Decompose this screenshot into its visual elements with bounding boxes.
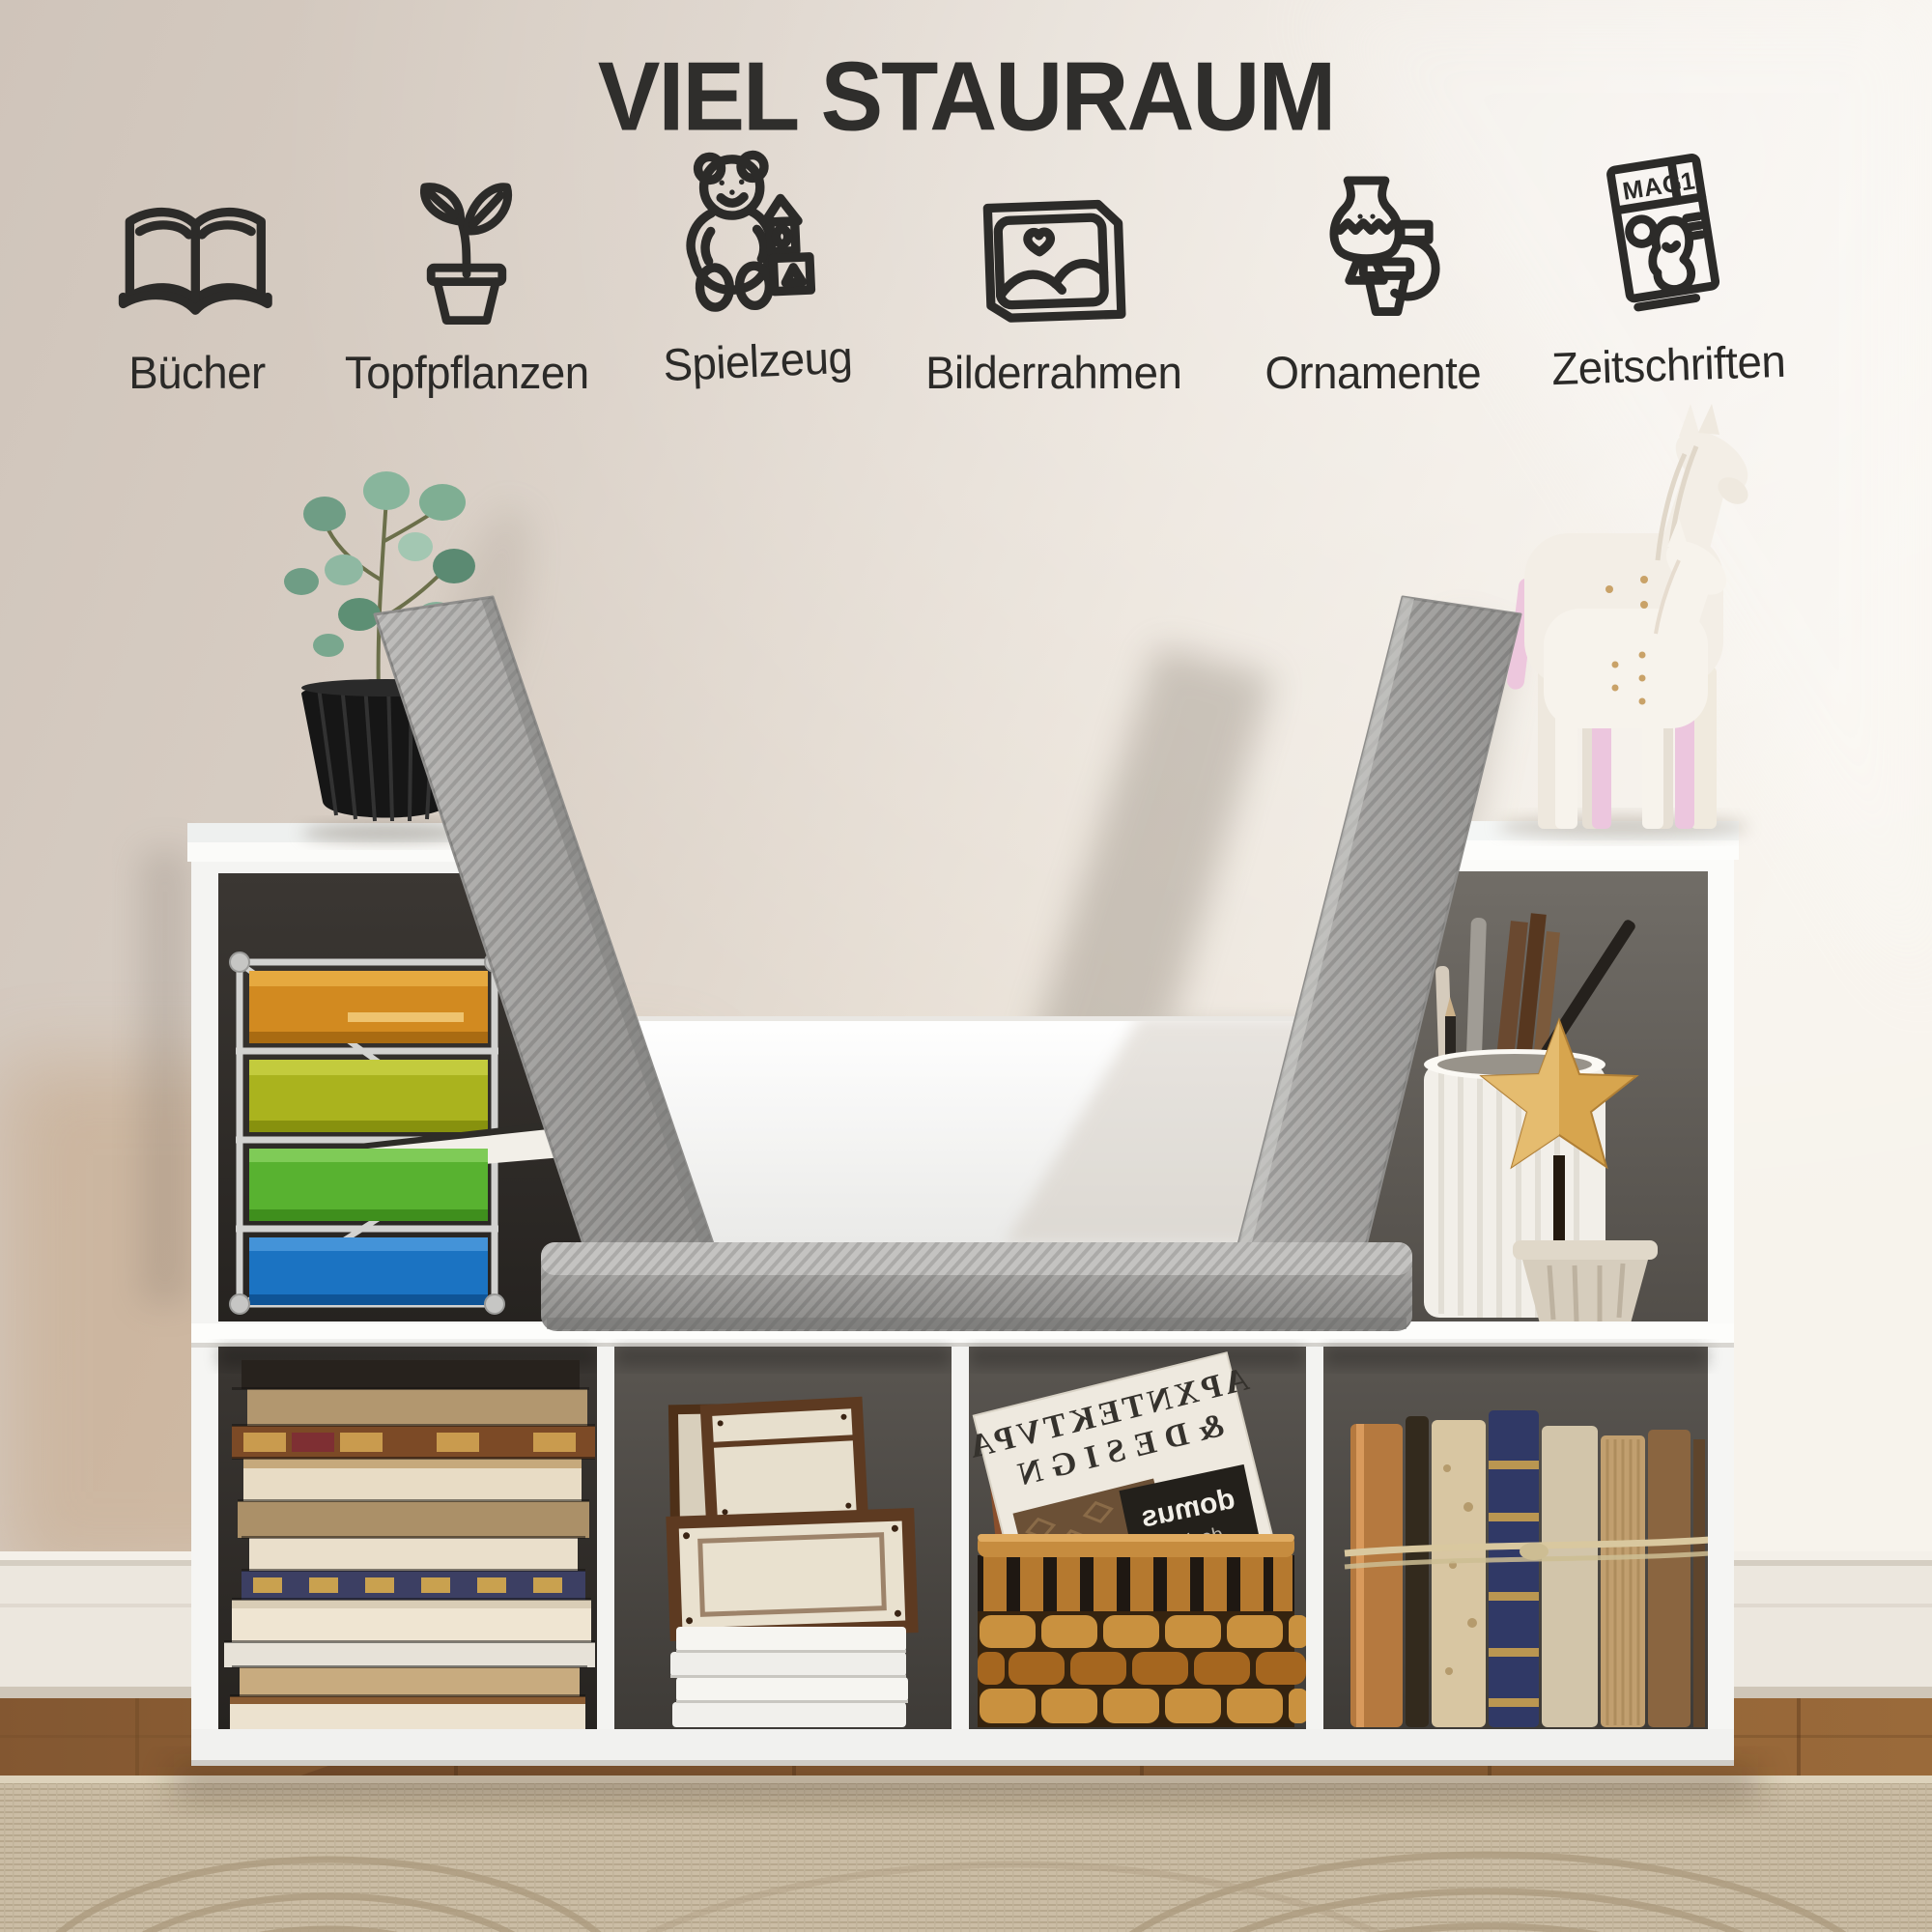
- drawer-blue: [249, 1237, 488, 1305]
- page-title: VIEL STAURAUM: [0, 41, 1932, 153]
- wicker-basket: [978, 1534, 1308, 1727]
- white-book-stack: [670, 1627, 908, 1727]
- feature-topfpflanzen: Topfpflanzen: [322, 153, 611, 399]
- feature-label: Ornamente: [1264, 346, 1481, 399]
- small-chest: [706, 1403, 863, 1526]
- teddy-bear-icon: [662, 137, 843, 323]
- magazine-icon: MAG 1: [1584, 142, 1745, 325]
- feature-zeitschriften: MAG 1 Zeitschriften: [1517, 140, 1815, 396]
- feature-buecher: Bücher: [52, 153, 342, 399]
- feature-label: Zeitschriften: [1551, 334, 1787, 395]
- product-marketing-image: APXNTEKTVPA &DESIGN domus design: [0, 0, 1932, 1932]
- ornaments-icon: [1291, 153, 1455, 330]
- feature-label: Spielzeug: [662, 330, 853, 391]
- rug: [0, 1776, 1932, 1932]
- drawer-olive: [249, 1060, 488, 1132]
- potted-plant-icon: [389, 153, 544, 330]
- feature-ornamente: Ornamente: [1228, 153, 1518, 399]
- seat-cushion: [541, 1242, 1412, 1331]
- feature-spielzeug: Spielzeug: [604, 135, 904, 394]
- picture-frame-icon: [970, 153, 1139, 330]
- antique-books: [1345, 1410, 1710, 1727]
- feature-label: Topfpflanzen: [345, 346, 589, 399]
- open-book-icon: [115, 153, 279, 330]
- feature-label: Bilderrahmen: [925, 346, 1181, 399]
- feature-label: Bücher: [128, 346, 266, 399]
- shelf-floor-shadow: [174, 1766, 1758, 1799]
- large-chest: [672, 1515, 912, 1634]
- feature-bilderrahmen: Bilderrahmen: [909, 153, 1199, 399]
- drawer-orange: [249, 971, 488, 1043]
- stacked-books: [224, 1360, 595, 1729]
